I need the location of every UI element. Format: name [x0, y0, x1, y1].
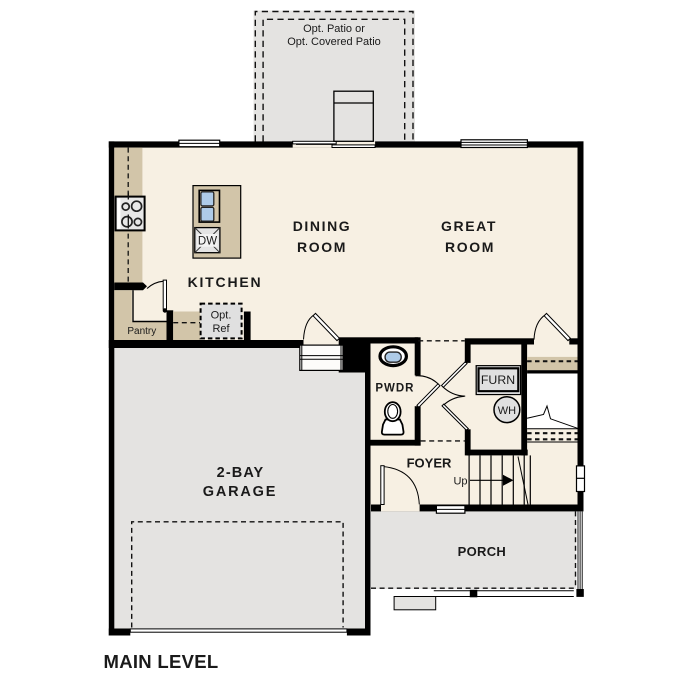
svg-text:GREAT: GREAT: [441, 218, 497, 234]
svg-text:Opt. Patio or: Opt. Patio or: [303, 23, 365, 35]
svg-text:DINING: DINING: [293, 218, 352, 234]
svg-text:GARAGE: GARAGE: [203, 484, 277, 500]
svg-text:2-BAY: 2-BAY: [217, 465, 265, 481]
svg-text:Opt. Covered Patio: Opt. Covered Patio: [287, 36, 381, 48]
svg-text:PWDR: PWDR: [375, 382, 414, 394]
svg-text:FOYER: FOYER: [407, 455, 452, 470]
svg-text:PORCH: PORCH: [458, 544, 506, 559]
svg-text:Opt.: Opt.: [211, 310, 232, 322]
svg-text:FURN: FURN: [481, 373, 515, 387]
svg-text:WH: WH: [498, 405, 516, 417]
svg-text:MAIN LEVEL: MAIN LEVEL: [104, 651, 219, 672]
svg-text:ROOM: ROOM: [297, 239, 347, 255]
svg-text:DW: DW: [198, 236, 217, 248]
svg-text:Pantry: Pantry: [127, 326, 156, 337]
svg-text:ROOM: ROOM: [445, 239, 495, 255]
svg-text:Ref: Ref: [212, 323, 230, 335]
svg-text:KITCHEN: KITCHEN: [188, 274, 263, 290]
svg-text:Up: Up: [453, 475, 467, 487]
